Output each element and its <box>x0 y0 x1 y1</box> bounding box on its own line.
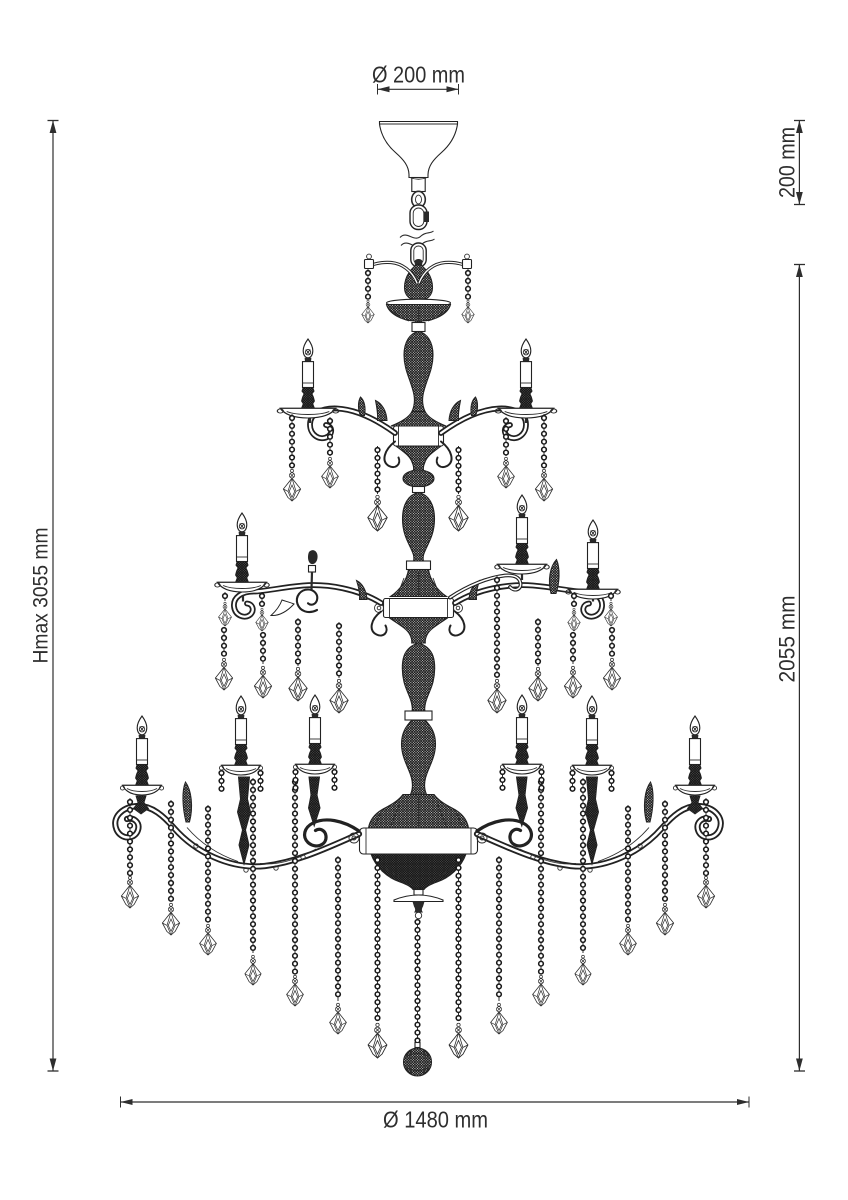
svg-text:Ø 1480 mm: Ø 1480 mm <box>383 1107 488 1133</box>
svg-text:Hmax 3055 mm: Hmax 3055 mm <box>30 528 53 664</box>
svg-text:200 mm: 200 mm <box>775 127 800 198</box>
svg-text:Ø 200 mm: Ø 200 mm <box>372 62 465 88</box>
svg-text:2055 mm: 2055 mm <box>775 596 800 683</box>
